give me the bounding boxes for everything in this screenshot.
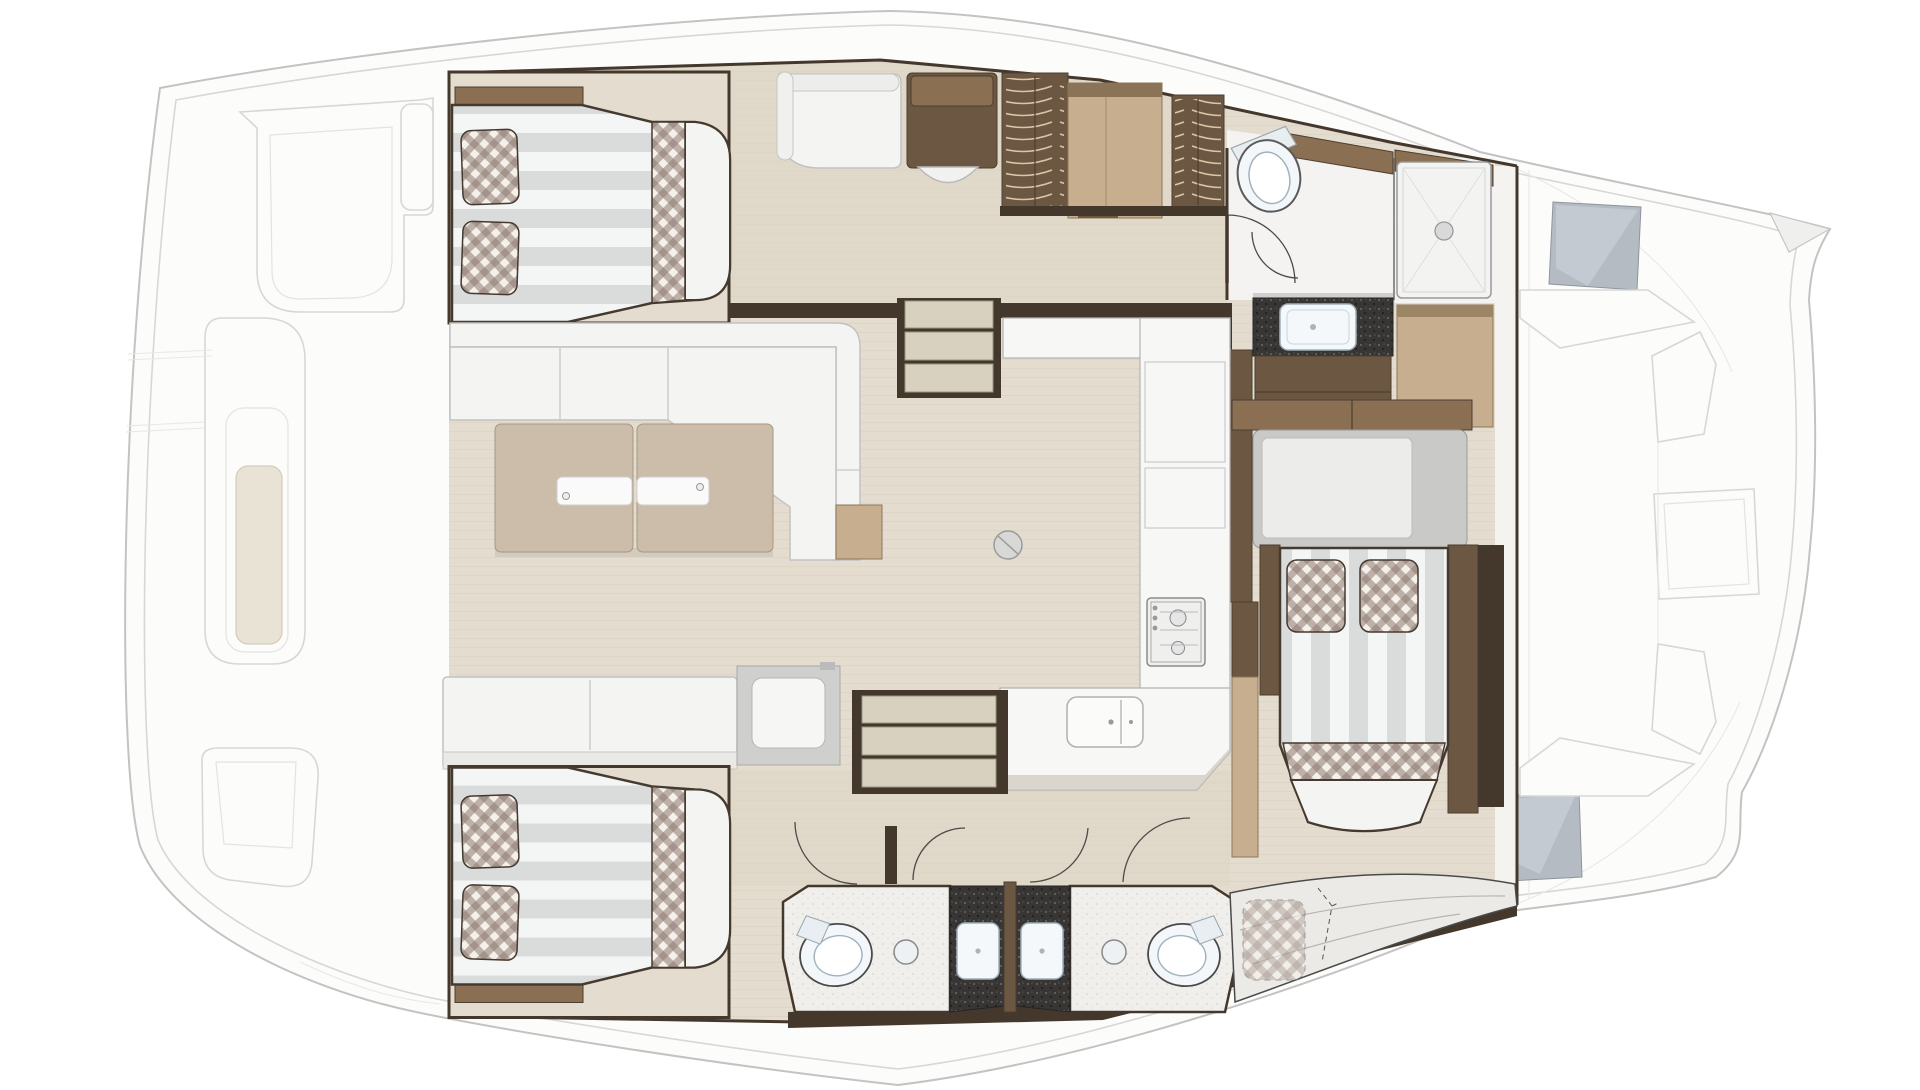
cabinet-brown-shelf — [911, 76, 993, 106]
cool-box-seat — [737, 662, 840, 765]
settee-back — [779, 74, 899, 91]
floor-fitting — [994, 531, 1022, 559]
bed-trim-right — [1448, 545, 1478, 813]
table-latch-2 — [697, 484, 704, 491]
step-3 — [905, 364, 993, 392]
yacht-floor-plan: Yacht interior layout floor plan (top vi… — [0, 0, 1920, 1090]
cabin-bottom — [449, 767, 730, 1018]
settee-arm — [777, 72, 793, 160]
round-basin — [894, 940, 918, 964]
cool-box-latch — [820, 662, 835, 670]
step-2 — [862, 727, 996, 755]
shower — [1397, 162, 1491, 298]
gingham-runner — [652, 122, 685, 303]
gingham-pillow-1 — [1287, 560, 1345, 632]
galley-sink — [1067, 697, 1143, 747]
owner-wardrobe-wall — [1478, 545, 1504, 807]
hanging-locker-2 — [1172, 95, 1224, 207]
gingham-pillow-1 — [461, 129, 520, 205]
wall-owner-left-lower — [1232, 677, 1258, 857]
table-latch-1 — [563, 493, 570, 500]
shower-drain — [1435, 222, 1453, 240]
step-2 — [905, 332, 993, 360]
berth-footboard — [685, 122, 730, 300]
bed-trim-left — [1260, 545, 1280, 695]
gingham-pillow-2 — [461, 221, 519, 295]
berth-foot-white — [1291, 780, 1437, 831]
vanity-sink-drain — [1310, 324, 1316, 330]
locker-tan-right-top — [1397, 305, 1493, 317]
sun-pad-bottom — [202, 748, 318, 887]
burner-2 — [1172, 642, 1185, 655]
side-hatch-top — [401, 104, 433, 210]
vanity-counter-edge — [1253, 293, 1393, 298]
side-table-tan — [836, 505, 882, 559]
gas-hob — [1147, 598, 1205, 666]
door-leaf-center — [885, 826, 897, 884]
stairs-top — [897, 298, 1001, 398]
headboard-wood-bar — [455, 87, 583, 105]
bench-sofa — [443, 677, 737, 769]
floor-plan-canvas: Yacht interior layout floor plan (top vi… — [0, 0, 1920, 1090]
wall-owner-left-upper — [1232, 602, 1258, 677]
vanity-sink — [1280, 304, 1356, 350]
table-slat-right — [637, 477, 709, 505]
gingham-pillow-2 — [1360, 560, 1418, 632]
wall-galley-right — [1228, 350, 1252, 602]
locker-tan — [1068, 83, 1162, 218]
cabin-top — [449, 72, 730, 323]
gingham-runner — [1283, 743, 1445, 780]
step-3 — [862, 759, 996, 787]
hanging-locker-1 — [1002, 73, 1068, 210]
bathroom-bottom-right — [1016, 886, 1237, 1012]
bathroom-bottom-left — [783, 886, 1004, 1012]
step-1 — [862, 696, 996, 723]
bathroom-partition — [1004, 882, 1016, 1012]
bow-table — [1654, 489, 1759, 599]
stairs-bottom — [852, 690, 1008, 794]
owner-desk-inner — [1262, 438, 1412, 538]
table-slat-left — [557, 477, 632, 505]
dashed-convertible-cushion — [1243, 900, 1305, 980]
sun-pad-hatch — [236, 466, 282, 644]
locker-base-ledge — [1000, 206, 1228, 216]
curved-settee — [1230, 874, 1517, 1002]
wall-galley-top — [993, 303, 1197, 318]
step-1 — [905, 301, 993, 328]
